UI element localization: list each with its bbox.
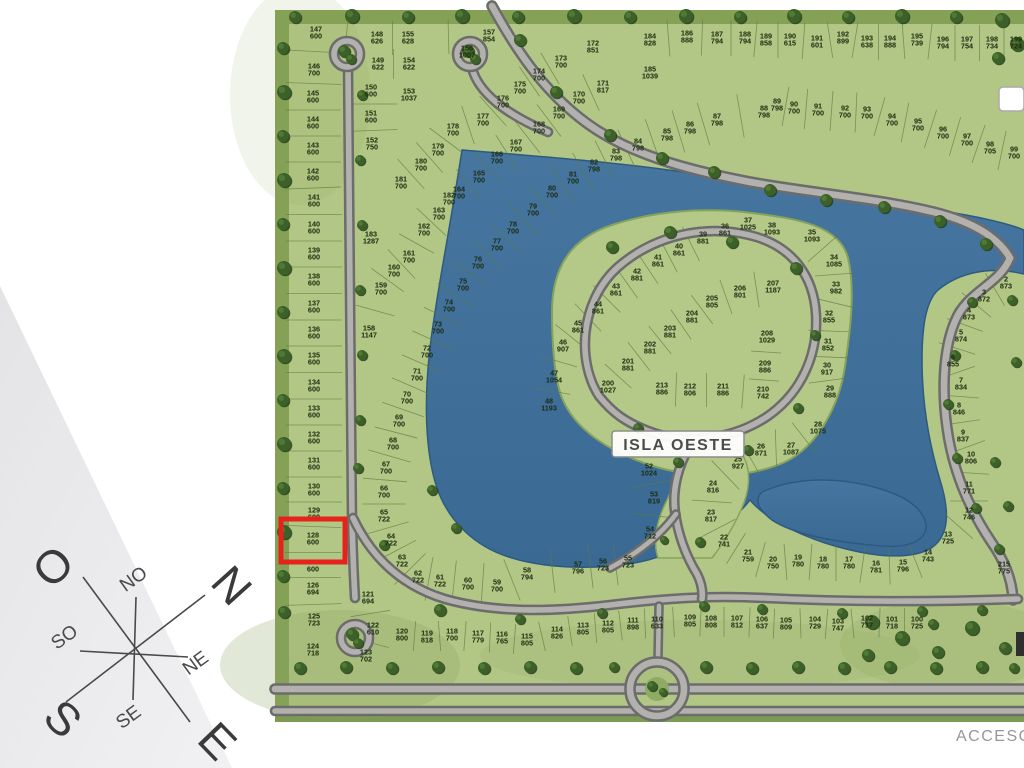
island-label-text: ISLA OESTE <box>623 437 733 454</box>
lot-label: 184828 <box>644 32 657 48</box>
map-label-box-partial <box>999 87 1024 111</box>
lot-label: 114826 <box>551 625 564 641</box>
lot-label: 121694 <box>362 590 375 606</box>
lot-label: 205805 <box>706 294 718 310</box>
lot-label: 137600 <box>308 299 320 315</box>
lot-label: 120800 <box>396 627 408 643</box>
lot-label: 116765 <box>496 630 508 646</box>
map-edge-marker <box>1016 632 1024 656</box>
lot-label: 148626 <box>371 30 383 46</box>
lot-label: 195739 <box>911 32 923 48</box>
lot-label: 192899 <box>837 30 849 46</box>
lot-label: 104729 <box>809 615 822 631</box>
lot-label: 193638 <box>861 34 873 50</box>
lot-label: 140600 <box>308 220 320 236</box>
lot-label: 171817 <box>597 79 609 95</box>
lot-label: 199724 <box>1010 35 1023 51</box>
lot-label: 149622 <box>372 56 384 72</box>
compass-label-north: N <box>201 556 262 615</box>
lot-label: 111898 <box>627 616 639 632</box>
lot-label: 131600 <box>308 456 320 472</box>
lot-label: 188794 <box>739 30 752 46</box>
lot-label: 2071187 <box>765 279 781 295</box>
lot-label: 2081029 <box>759 329 775 345</box>
lot-label: 167700 <box>510 138 522 154</box>
lot-label: 162700 <box>418 222 430 238</box>
lot-label: 211886 <box>717 382 729 398</box>
lot-label: 1851039 <box>642 65 658 81</box>
lot-label: 154622 <box>403 56 416 72</box>
lot-label: 169700 <box>553 105 565 121</box>
lot-label: 102717 <box>861 614 873 630</box>
map-edge-band-top <box>275 10 1024 24</box>
lot-label: 1561007 <box>459 44 475 60</box>
lot-label: 101718 <box>886 615 898 631</box>
lot-label: 124718 <box>307 642 320 658</box>
lot-label: 203881 <box>664 324 676 340</box>
lot-label: 197754 <box>961 35 974 51</box>
lot-label: 138600 <box>308 272 320 288</box>
lot-label: 152750 <box>366 136 378 152</box>
lot-label: 126694 <box>307 581 320 597</box>
lot-label: 141600 <box>308 193 320 209</box>
lot-label: 1531037 <box>401 87 417 103</box>
lot-label: 166700 <box>491 150 503 166</box>
lot-label: 118700 <box>446 627 458 643</box>
lot-label: 160700 <box>388 263 400 279</box>
island-name-label: ISLA OESTE <box>612 431 744 457</box>
lot-label: 125723 <box>308 612 320 628</box>
lot-label: 202881 <box>644 340 656 356</box>
lot-label: 107812 <box>731 614 743 630</box>
lot-label: 181700 <box>395 175 407 191</box>
lot-label: 146700 <box>308 62 320 78</box>
lot-label: 209886 <box>759 359 771 375</box>
lot-label: 163700 <box>433 206 445 222</box>
lot-label: 147600 <box>310 25 322 41</box>
corner-triangle <box>0 286 232 768</box>
lot-label: 206801 <box>734 284 746 300</box>
lot-label: 2001027 <box>600 379 616 395</box>
lot-label: 164700 <box>453 185 466 201</box>
lot-label: 186888 <box>681 29 693 45</box>
lot-label: 106637 <box>756 615 768 631</box>
lot-label: 177700 <box>477 112 489 128</box>
access-road-label: ACCESO <box>956 728 1024 745</box>
lot-label: 168700 <box>533 120 545 136</box>
lot-label: 117779 <box>472 629 484 645</box>
lot-label: 175700 <box>514 80 526 96</box>
lot-label: 174700 <box>533 67 546 83</box>
lot-label: 170700 <box>573 90 585 106</box>
lot-label: 194888 <box>884 34 897 50</box>
lot-label: 1581147 <box>361 324 377 340</box>
lot-label: 150600 <box>365 83 377 99</box>
lot-label: 130600 <box>308 482 320 498</box>
lot-label: 213886 <box>656 381 668 397</box>
lot-label: 201881 <box>622 357 634 373</box>
lot-label: 103747 <box>832 617 844 633</box>
highlighted-lot-label: 128600 <box>307 531 319 547</box>
lot-label: 109805 <box>684 613 696 629</box>
lot-label: 173700 <box>555 54 567 70</box>
lot-label: 191601 <box>811 34 823 50</box>
lot-label: 189858 <box>760 32 772 48</box>
lot-label: 187794 <box>711 30 724 46</box>
lot-label: 113805 <box>577 621 589 637</box>
lot-label: 179700 <box>432 142 444 158</box>
lot-label: 142600 <box>307 167 319 183</box>
lot-label: 123702 <box>360 648 372 664</box>
lot-label: 172851 <box>587 39 599 55</box>
lot-label: 159700 <box>375 281 387 297</box>
page-root: ONSENOSONESE 147600146700145 <box>0 0 1024 768</box>
masterplan-map: 1476001467001456001446001436001426001416… <box>220 0 1024 722</box>
lot-label: 161700 <box>403 249 415 265</box>
lot-label: 136600 <box>308 325 320 341</box>
lot-label: 157854 <box>483 28 496 44</box>
lot-label: 178700 <box>447 122 459 138</box>
lot-label: 105809 <box>780 616 792 632</box>
lot-label: 210742 <box>757 385 769 401</box>
lot-label: 145600 <box>307 89 319 105</box>
lot-label: 122610 <box>367 621 379 637</box>
lot-label: 180700 <box>415 157 427 173</box>
lot-label: 135600 <box>308 351 320 367</box>
lot-label: 196794 <box>937 35 950 51</box>
lot-label: 143600 <box>307 141 319 157</box>
lot-label: 119818 <box>421 629 433 645</box>
lot-label: 144600 <box>307 115 320 131</box>
lot-label: 112805 <box>602 619 614 635</box>
lot-label: 1831287 <box>363 230 379 246</box>
lot-label: 108808 <box>705 614 717 630</box>
lot-label: 204881 <box>686 309 699 325</box>
lot-label: 139600 <box>308 246 320 262</box>
lot-label: 110633 <box>651 615 663 631</box>
lot-label: 151600 <box>365 109 377 125</box>
lot-label: 212806 <box>684 382 696 398</box>
lot-label: 198734 <box>986 35 999 51</box>
lot-label: 176700 <box>497 94 509 110</box>
lot-label: 215775 <box>998 560 1010 576</box>
lot-label: 165700 <box>473 169 485 185</box>
lot-label: 115805 <box>521 632 533 648</box>
lot-label: 155628 <box>402 30 414 46</box>
lot-label: 190615 <box>784 32 796 48</box>
lot-label: 100725 <box>911 615 923 631</box>
lot-label: 132600 <box>308 430 320 446</box>
lot-label: 134600 <box>308 378 321 394</box>
lot-label: 133600 <box>308 404 320 420</box>
